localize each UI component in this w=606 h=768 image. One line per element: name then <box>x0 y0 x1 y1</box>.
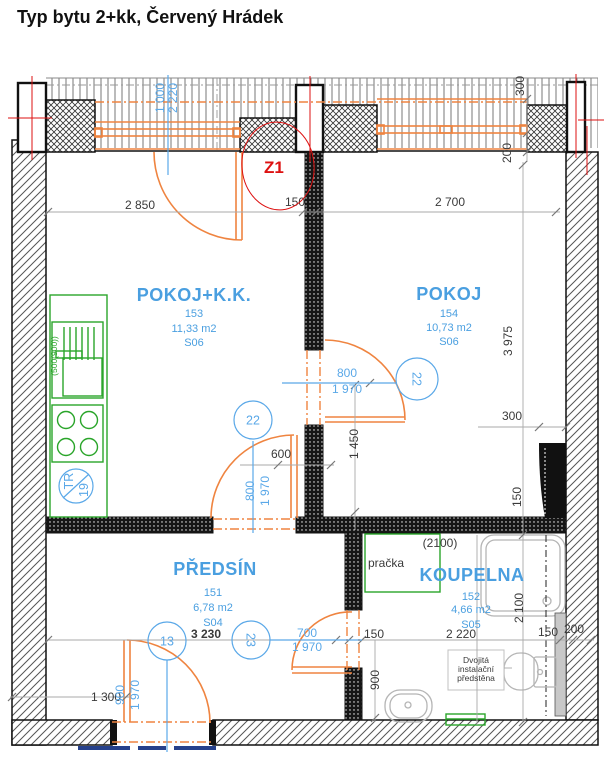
balcony-door-height: 2 220 <box>166 83 180 113</box>
partition-rooms-top <box>305 152 323 350</box>
door13-height: 1 970 <box>128 680 142 710</box>
sink-size-label: (500(900)) <box>49 336 59 376</box>
sink-drainer <box>64 327 94 360</box>
room-section: S06 <box>439 336 459 348</box>
room-name: KOUPELNA <box>419 565 524 585</box>
pier-3 <box>323 105 377 152</box>
room-label-pokoj: POKOJ 154 10,73 m2 S06 <box>416 284 482 348</box>
balcony-door-width: 1 000 <box>153 83 167 113</box>
pier-4 <box>527 105 567 152</box>
pier-1 <box>46 100 95 152</box>
washer-label: pračka <box>368 556 404 570</box>
door22b-height: 1 970 <box>258 476 272 506</box>
door-swing-arc <box>154 152 242 240</box>
bottom-wall-right <box>213 720 598 745</box>
door22b-width: 800 <box>243 481 257 501</box>
room-area: 6,78 m2 <box>193 602 233 614</box>
sink-tap <box>56 351 82 358</box>
room-label-predsin: PŘEDSÍN 151 6,78 m2 S04 <box>173 558 257 629</box>
dim-top-300: 300 <box>513 76 527 96</box>
door-circle-label: 22 <box>246 414 260 428</box>
dim-bath-150: 150 <box>538 625 558 639</box>
bathtub-drain <box>543 597 551 605</box>
wall-kk-hall <box>46 517 213 533</box>
dim-hall-width: 3 230 <box>191 627 221 641</box>
dim-mid-wall: 150 <box>285 195 305 209</box>
washbasin-inner <box>390 694 427 718</box>
dim-600: 600 <box>271 447 291 461</box>
room-number: 152 <box>462 591 480 603</box>
sink-bowl <box>63 358 102 396</box>
room-label-kk: POKOJ+K.K. 153 11,33 m2 S06 <box>137 285 252 349</box>
dim-pokoj-width: 2 700 <box>435 195 465 209</box>
floor-plan: (500(900)) <box>0 0 606 768</box>
clipped-text-fragments <box>78 746 216 750</box>
room-number: 154 <box>440 308 458 320</box>
room-area: 11,33 m2 <box>171 323 216 335</box>
dim-kk-width: 2 850 <box>125 198 155 212</box>
door-circle-label: 13 <box>160 635 174 649</box>
dim-shaft-150: 150 <box>510 487 524 507</box>
room-section: S04 <box>203 617 223 629</box>
toilet-bowl <box>504 653 538 690</box>
wall-hall-bath-bottom <box>345 668 362 720</box>
door-circle-label: 22 <box>410 372 424 386</box>
stove-burner <box>81 412 98 429</box>
wall-pokoj-bath <box>296 517 566 533</box>
dim-top-200: 200 <box>500 143 514 163</box>
wall-hall-bath-top <box>345 533 362 610</box>
stove-burner <box>58 412 75 429</box>
door-marks: 22 22 23 13 TR 19 <box>59 75 438 752</box>
room-labels: POKOJ+K.K. 153 11,33 m2 S06 POKOJ 154 10… <box>137 284 525 631</box>
dim-bath-head: (2100) <box>423 536 458 550</box>
dim-pokoj-height: 3 975 <box>501 326 515 356</box>
left-wall <box>12 140 46 745</box>
z1-label: Z1 <box>264 158 284 177</box>
dim-door-wall-150: 150 <box>364 627 384 641</box>
note-line-3: předstěna <box>457 673 495 683</box>
dim-bath-height: 2 100 <box>512 593 526 623</box>
door13-width: 900 <box>113 685 127 705</box>
door22a-width: 800 <box>337 366 357 380</box>
door23-width: 700 <box>297 626 317 640</box>
room-name: POKOJ <box>416 284 482 304</box>
room-section: S06 <box>184 337 204 349</box>
stove-burner <box>58 439 75 456</box>
room-number: 151 <box>204 587 222 599</box>
door23-height: 1 970 <box>292 640 322 654</box>
room-label-koupelna: KOUPELNA 152 4,66 m2 S05 <box>419 565 524 631</box>
room-area: 4,66 m2 <box>451 604 491 616</box>
dim-shaft-300: 300 <box>502 409 522 423</box>
door-swing-arc <box>325 340 405 420</box>
doors <box>112 152 405 742</box>
door-size-texts: 800 1 970 800 1 970 700 1 970 900 1 970 … <box>113 83 362 710</box>
room-area: 10,73 m2 <box>426 322 472 334</box>
balcony-door <box>154 152 242 240</box>
sink-unit <box>52 322 103 398</box>
room-section: S05 <box>461 619 481 631</box>
dim-bath-900: 900 <box>368 670 382 690</box>
stove-burner <box>81 439 98 456</box>
dim-bath-200: 200 <box>564 622 584 636</box>
door-circle-label: 23 <box>244 633 258 647</box>
tr-value: 19 <box>77 483 91 497</box>
door22a-height: 1 970 <box>332 382 362 396</box>
room-name: PŘEDSÍN <box>173 558 257 579</box>
room-name: POKOJ+K.K. <box>137 285 252 305</box>
washbasin-outer <box>385 690 432 722</box>
room-number: 153 <box>185 308 203 320</box>
dim-1450: 1 450 <box>347 429 361 459</box>
tr-label: TR <box>62 473 76 490</box>
shaft <box>539 443 566 518</box>
entry-jamb-right <box>209 720 216 745</box>
washbasin-tap <box>405 702 411 708</box>
entry-jamb-left <box>110 720 117 745</box>
bottom-wall-left <box>12 720 112 745</box>
